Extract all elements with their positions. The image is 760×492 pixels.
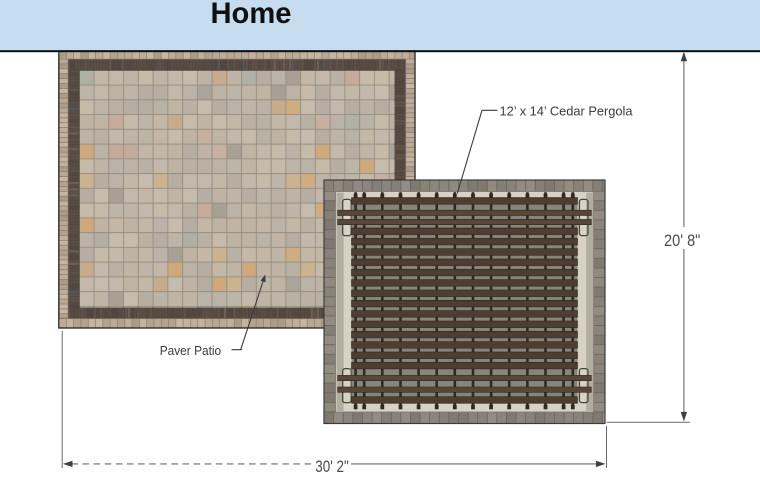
svg-text:Paver Patio: Paver Patio [160, 343, 222, 358]
svg-text:30' 2": 30' 2" [315, 458, 349, 476]
svg-text:Home: Home [211, 0, 292, 30]
svg-text:20' 8": 20' 8" [664, 232, 700, 250]
svg-text:12’ x 14’ Cedar Pergola: 12’ x 14’ Cedar Pergola [500, 104, 634, 119]
